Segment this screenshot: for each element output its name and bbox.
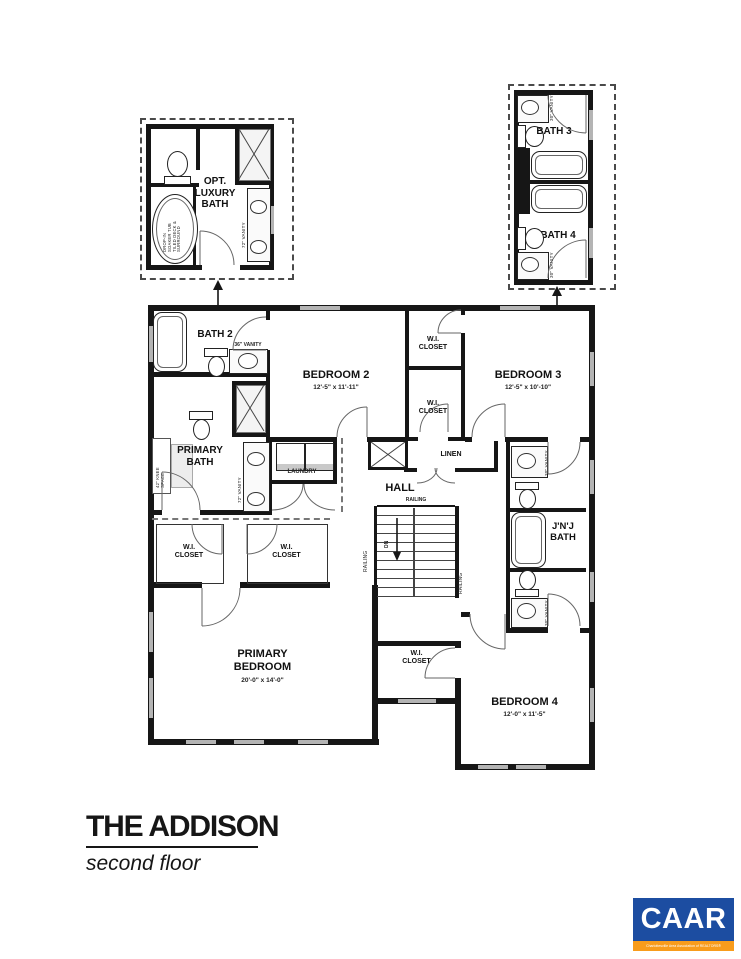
wall [461,305,465,315]
sink [247,452,265,466]
window [590,572,594,602]
wall [530,180,588,184]
plan-title: THE ADDISON [86,810,278,843]
window [478,765,508,769]
sink [247,492,265,506]
railing-label: RAILING [459,573,465,594]
bedroom2-dims: 12'-5" x 11'-11" [276,384,396,391]
wall [580,437,595,442]
window [300,306,340,310]
wi-closet-label: W.I. CLOSET [380,650,453,666]
stairs-down-label: DN [385,540,391,548]
plan-subtitle: second floor [86,852,278,876]
sink [238,353,258,369]
wall [448,437,465,441]
linen-label: LINEN [408,451,494,459]
bedroom2-label: BEDROOM 2 [276,369,396,382]
toilet [519,570,536,590]
detail-callout-arrow [210,280,226,308]
stairs-down-arrow [392,516,402,562]
title-block: THE ADDISON second floor [86,810,278,876]
washer [276,443,305,471]
sink [521,257,539,272]
wall [405,305,409,437]
window [589,228,593,258]
window [590,460,594,494]
wi-closet-label: W.I. CLOSET [408,400,458,416]
wi-closet-label: W.I. CLOSET [158,544,220,560]
door-arc [548,240,586,278]
wall [505,437,548,442]
sink [517,453,536,469]
wall [148,510,162,515]
bedroom4-dims: 12'-0" x 11'-5" [462,711,587,718]
window [186,740,216,744]
railing-label: RAILING [396,497,436,503]
window [398,699,436,703]
railing-label: RAILING [364,551,370,572]
staircase [377,507,455,597]
primary-bedroom-label: PRIMARY BEDROOM [195,648,330,673]
wall [372,641,461,646]
door-arc [548,95,586,133]
window [234,740,264,744]
window [298,740,328,744]
bath2-label: BATH 2 [183,329,247,341]
door-arc [304,484,335,510]
bathtub [531,185,587,213]
bathtub [153,312,187,372]
wall [506,568,586,572]
window [149,612,153,652]
wall [461,370,465,437]
sink [521,100,539,115]
door-arc [470,614,505,649]
wall [514,280,593,285]
wall [465,437,472,442]
door-arc [272,484,303,510]
toilet [208,356,225,377]
primary-bedroom-dims: 20'-0" x 14'-0" [195,677,330,684]
bedroom3-label: BEDROOM 3 [468,369,588,382]
sink [517,603,536,619]
door-arc [200,231,234,265]
laundry-label: LAUNDRY [270,469,334,475]
caar-logo: CAAR Charlottesville Area Association of… [633,898,734,951]
opt-luxury-bath-label: OPT. LUXURY BATH [183,176,247,211]
toilet [519,489,536,509]
hall-label: HALL [378,482,422,495]
title-rule [86,846,258,848]
wi-closet-label: W.I. CLOSET [249,544,324,560]
toilet-tank [515,589,539,597]
wall [455,641,461,648]
wall [516,148,530,214]
toilet [193,419,210,440]
caar-logo-text: CAAR [633,898,734,941]
dryer [305,443,334,471]
door-arc [202,588,240,626]
wall [461,333,465,370]
door-arc [548,594,580,626]
wall [372,585,378,745]
dashed-line [152,518,330,520]
wall [405,366,465,370]
window [149,678,153,718]
tub-note: DROP-IN SOAKER TUB TILED DECK & SURROUND [163,221,182,252]
bedroom3-dims: 12'-5" x 10'-10" [468,384,588,391]
floor-plan-page: 72" VANITY DROP-IN SOAKER TUB TILED DECK… [0,0,741,959]
window [500,306,540,310]
wall [266,305,270,320]
door-arc [162,472,200,510]
bedroom4-label: BEDROOM 4 [462,696,587,709]
shower-x-icon [236,385,264,431]
window [589,110,593,140]
window [516,765,546,769]
primary-bath-label: PRIMARY BATH [160,445,240,468]
sink [250,240,267,254]
shower-x-icon [239,129,269,179]
vanity-size-label: 72" VANITY [241,222,246,248]
caar-logo-tagline: Charlottesville Area Association of REAL… [633,941,734,951]
jnj-bath-label: J'N'J BATH [540,522,586,544]
wall [146,124,151,270]
wall [455,678,461,698]
wall [196,124,200,170]
door-arc [417,468,437,483]
dashed-line [341,438,343,512]
door-arc [337,407,367,437]
window [590,352,594,386]
chase-x-icon [371,442,405,467]
door-arc [548,442,580,474]
window [590,688,594,722]
vanity-size-label: 72" VANITY [237,477,242,503]
wi-closet-label: W.I. CLOSET [408,336,458,352]
wall [580,628,592,633]
wall [455,698,461,768]
toilet [167,151,188,177]
wall [455,468,498,472]
wall [506,441,510,628]
door-arc [472,404,505,437]
door-arc [435,468,455,483]
sink [250,200,267,214]
wall [232,433,268,437]
bathtub [531,151,587,179]
toilet [525,228,544,249]
wall [461,612,470,617]
door-arc [438,310,461,333]
wall [506,628,548,633]
wall [270,437,337,442]
